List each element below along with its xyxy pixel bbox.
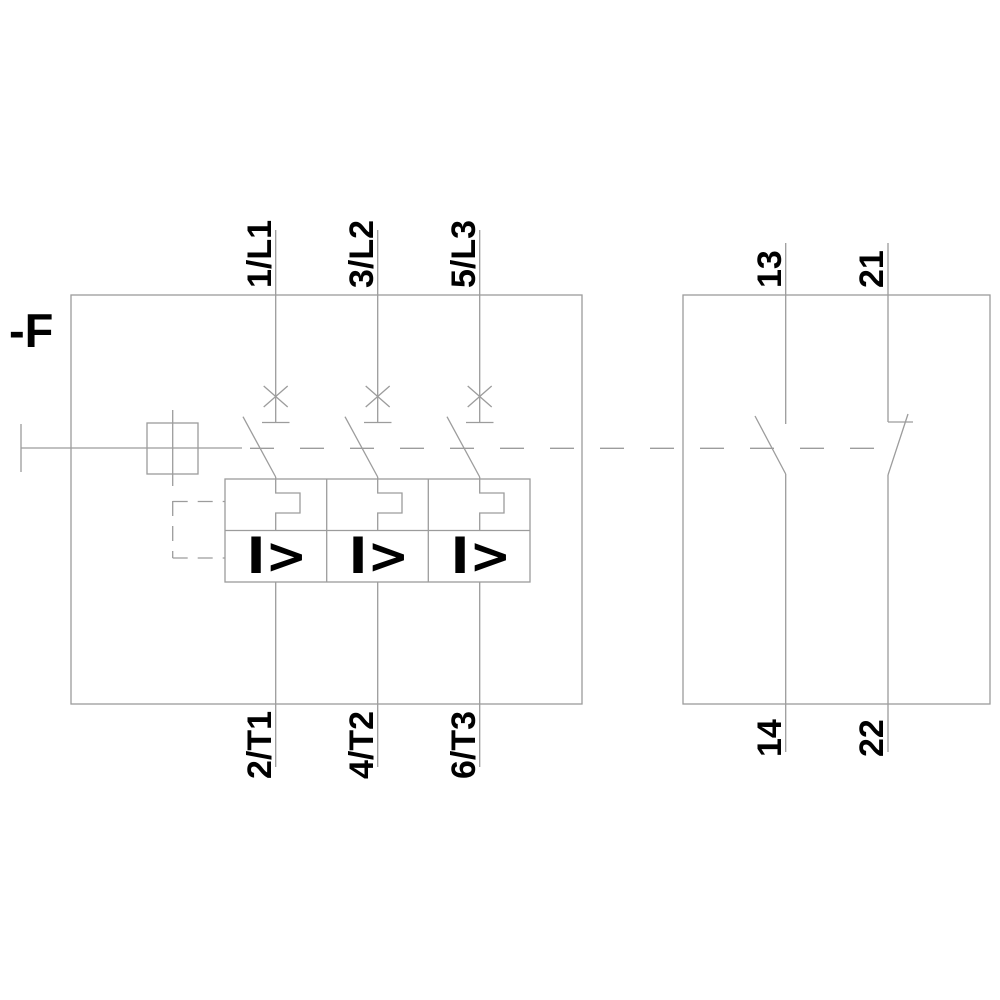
- aux-no-contact-blade: [755, 416, 786, 474]
- pole-3-thermal-overload-symbol: [480, 477, 504, 531]
- aux-nc-contact: [888, 243, 913, 752]
- pole-1-contact-blade: [243, 417, 276, 477]
- terminal-label-3L2: 3/L2: [343, 220, 381, 288]
- terminal-label-14: 14: [751, 719, 789, 757]
- aux-no-contact: [755, 243, 786, 752]
- pole-2-thermal-overload-symbol: [378, 477, 402, 531]
- pole-2-overcurrent-trip-label: I>: [349, 527, 410, 585]
- terminal-label-22: 22: [853, 719, 891, 757]
- pole-3-contact-blade: [447, 417, 480, 477]
- aux-nc-contact-blade: [888, 414, 908, 475]
- device-designator-label: -F: [9, 304, 53, 357]
- schematic-labels: -F 1/L1 3/L2 5/L3 2/T1 4/T2 6/T3 13 21 1…: [9, 220, 891, 779]
- terminal-label-13: 13: [751, 250, 789, 288]
- pole-2-contact-blade: [345, 417, 378, 477]
- pole-2: [345, 230, 402, 767]
- terminal-label-4T2: 4/T2: [343, 711, 381, 779]
- aux-contact-enclosure: [683, 295, 990, 704]
- terminal-label-2T1: 2/T1: [241, 711, 279, 779]
- pole-3: [447, 230, 504, 767]
- pole-1-thermal-overload-symbol: [276, 477, 300, 531]
- circuit-breaker-schematic: -F 1/L1 3/L2 5/L3 2/T1 4/T2 6/T3 13 21 1…: [0, 0, 1000, 1000]
- terminal-label-6T3: 6/T3: [445, 711, 483, 779]
- pole-1-overcurrent-trip-label: I>: [247, 527, 308, 585]
- pole-3-overcurrent-trip-label: I>: [451, 527, 512, 585]
- terminal-label-1L1: 1/L1: [241, 220, 279, 288]
- terminal-label-21: 21: [853, 250, 891, 288]
- terminal-label-5L3: 5/L3: [445, 220, 483, 288]
- pole-1: [243, 230, 300, 767]
- schematic-linework: [21, 230, 990, 767]
- trip-linkage-dashed: [173, 501, 225, 558]
